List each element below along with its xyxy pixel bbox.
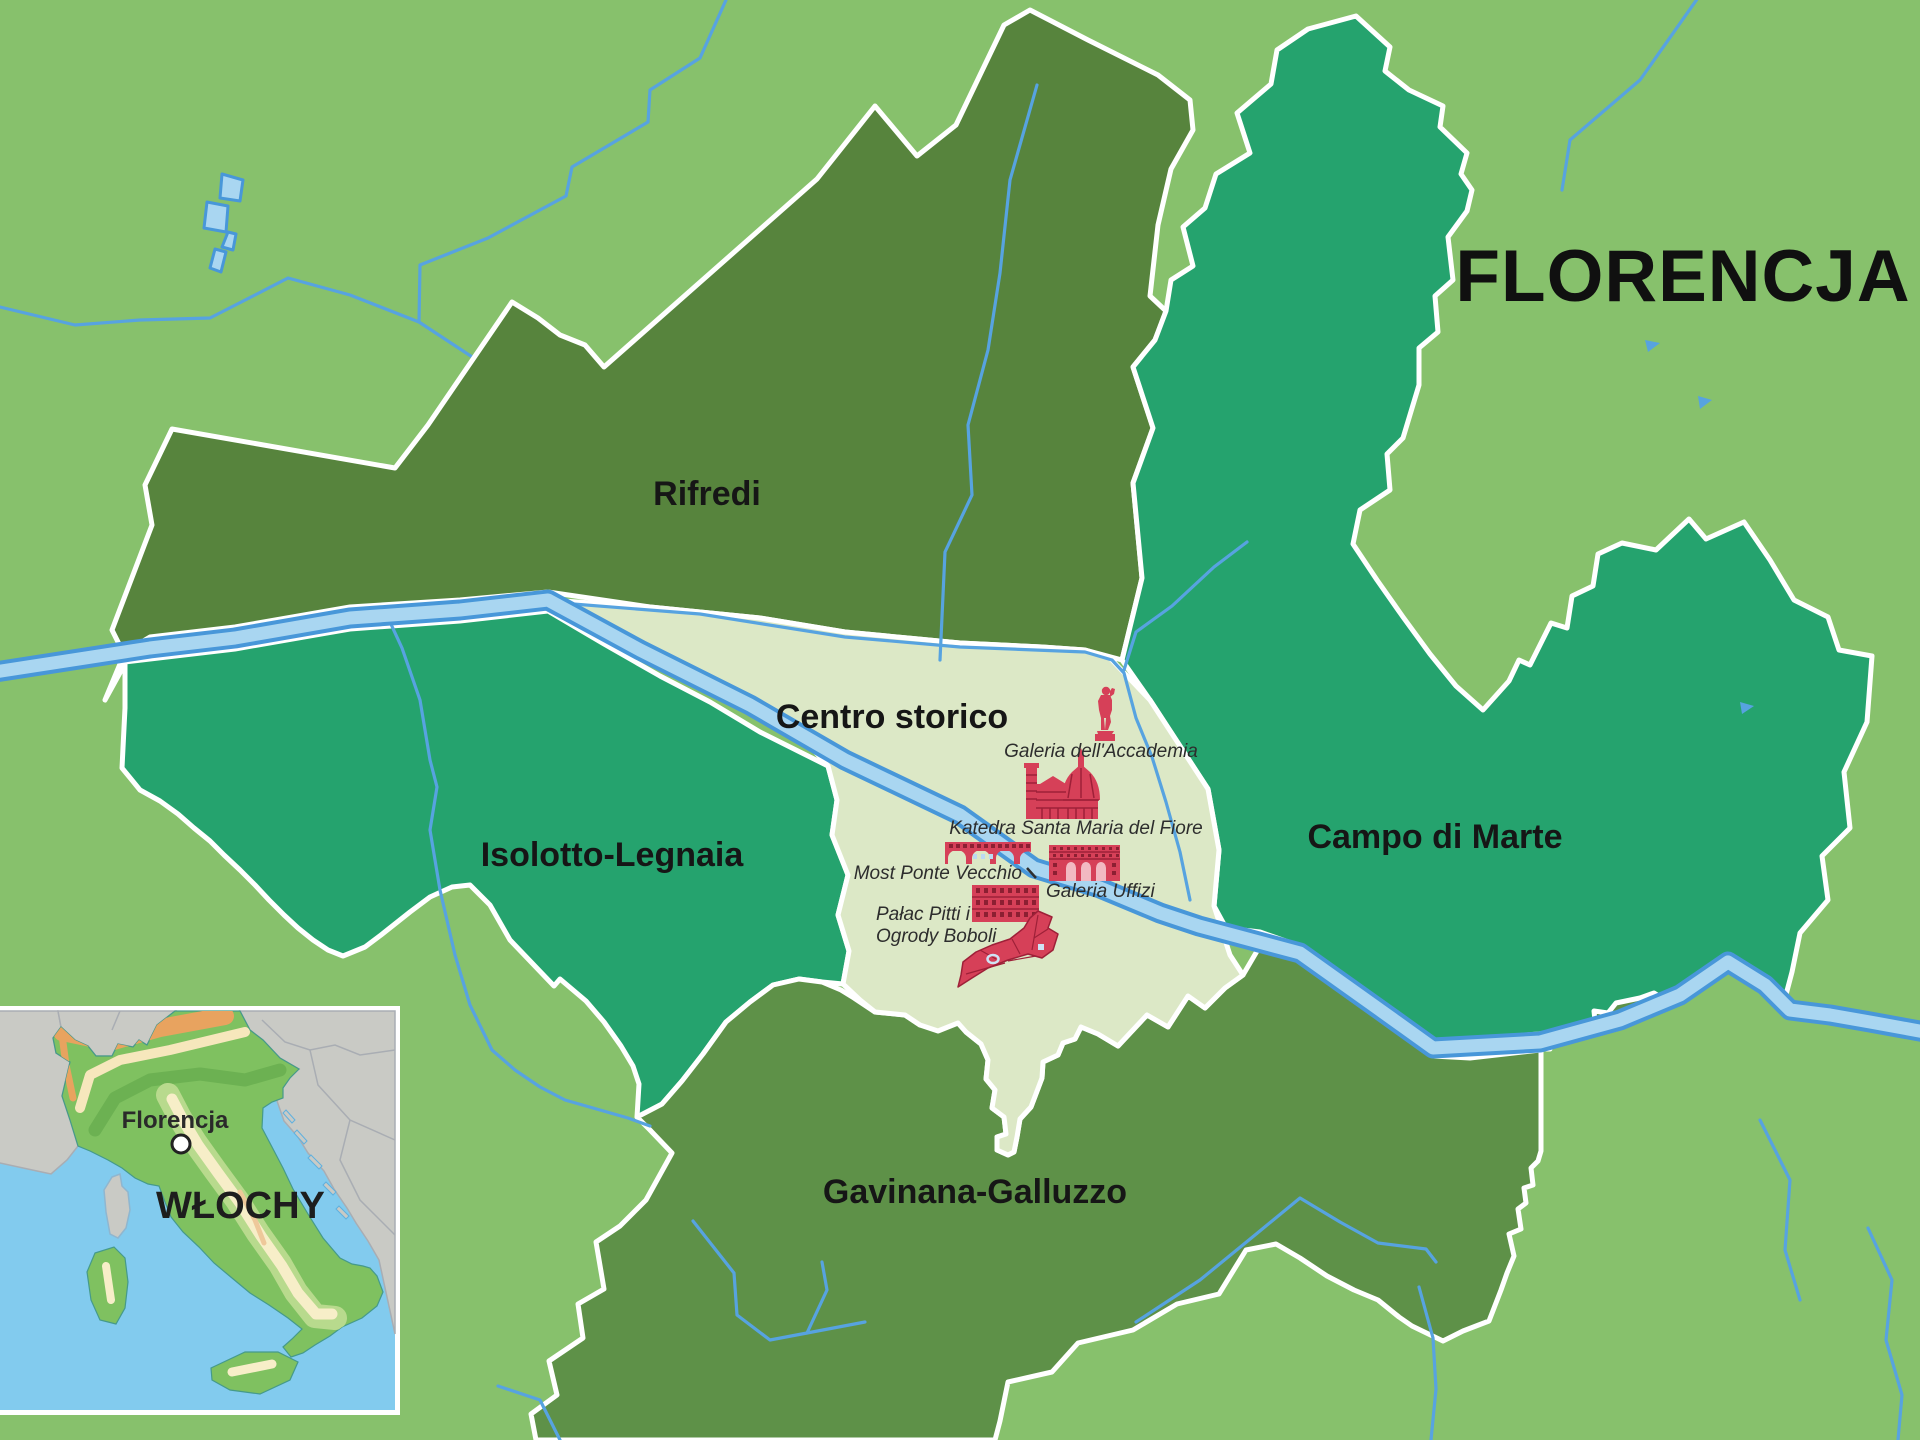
svg-text:Isolotto-Legnaia: Isolotto-Legnaia	[481, 836, 745, 874]
svg-text:Gavinana-Galluzzo: Gavinana-Galluzzo	[823, 1173, 1127, 1211]
svg-text:Centro storico: Centro storico	[776, 698, 1008, 736]
svg-text:WŁOCHY: WŁOCHY	[156, 1185, 325, 1227]
svg-text:Pałac Pitti i: Pałac Pitti i	[876, 904, 971, 925]
svg-text:Ogrody Boboli: Ogrody Boboli	[876, 926, 997, 947]
svg-text:Rifredi: Rifredi	[653, 475, 761, 513]
svg-text:Galeria dell'Accademia: Galeria dell'Accademia	[1004, 741, 1198, 762]
svg-text:Katedra Santa Maria del Fiore: Katedra Santa Maria del Fiore	[949, 818, 1202, 839]
svg-text:Galeria Uffizi: Galeria Uffizi	[1046, 881, 1156, 902]
svg-text:Florencja: Florencja	[122, 1107, 229, 1134]
svg-text:Most Ponte Vecchio: Most Ponte Vecchio	[854, 863, 1022, 884]
svg-text:FLORENCJA: FLORENCJA	[1455, 236, 1910, 317]
svg-text:Campo di Marte: Campo di Marte	[1307, 818, 1562, 856]
